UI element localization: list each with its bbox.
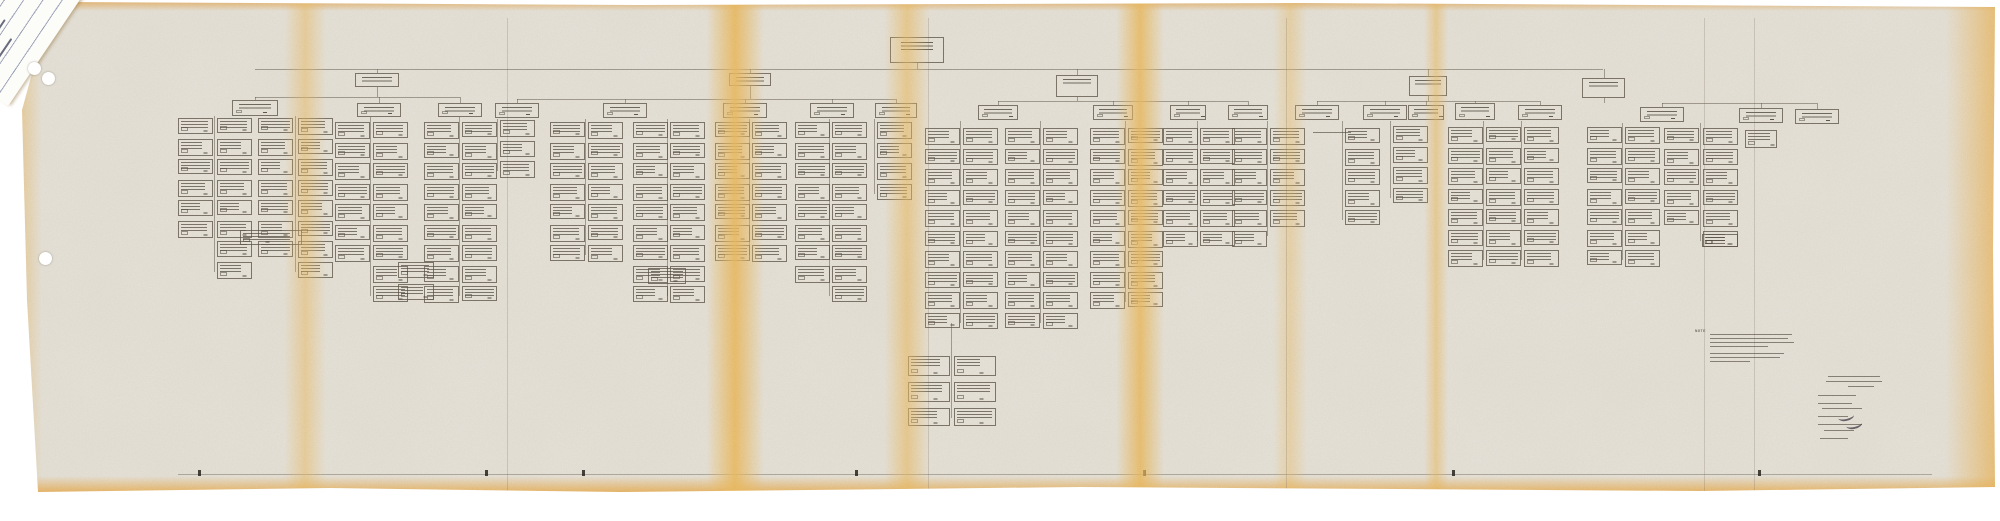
org-box [1625,148,1660,164]
org-box [1448,189,1483,204]
org-box [462,245,497,261]
org-box [1587,189,1622,206]
org-box [908,356,950,376]
org-box [373,122,408,138]
org-box [1625,209,1660,226]
org-box [588,122,623,139]
org-box [1625,230,1660,246]
org-box [1524,230,1559,245]
org-box [1005,272,1040,288]
org-box [424,184,459,200]
org-box [373,143,408,160]
org-box [178,159,213,174]
org-box [1702,234,1738,247]
org-box [1448,250,1483,267]
org-box [1625,127,1660,144]
fold-mark [855,470,858,476]
org-box [550,143,585,160]
org-box [335,245,370,262]
column-connector-line [1521,121,1522,260]
crease-line [1286,18,1287,491]
org-box [1005,292,1040,309]
org-box [1128,190,1163,207]
column-connector-line [951,323,952,418]
org-box [925,149,960,164]
org-box [1587,209,1622,225]
org-box [832,225,867,242]
org-box [1200,149,1235,164]
org-box [1005,313,1040,328]
org-box [1005,251,1040,268]
org-box [462,225,497,242]
org-box [178,180,213,197]
org-box [550,225,585,242]
org-box [963,128,998,145]
org-box [633,204,668,220]
org-header-box [232,100,278,116]
org-box [462,286,497,301]
org-box [588,245,623,262]
org-box [217,139,252,156]
punch-hole [42,72,55,85]
org-header-box [1170,105,1206,120]
org-box [1163,190,1198,205]
org-box [462,184,497,201]
org-box [1200,231,1235,246]
org-box [1232,169,1267,186]
column-connector-line [874,119,875,194]
org-box [335,122,370,139]
org-branch-box [1409,76,1447,96]
org-box [1200,128,1235,145]
org-box [1587,148,1622,165]
org-box [925,169,960,186]
org-box [1448,127,1483,144]
org-box [1486,168,1521,184]
org-box [752,184,787,200]
crease-line [507,18,508,491]
org-box [1448,209,1483,226]
org-box [715,143,750,160]
org-box [963,169,998,186]
org-box [178,200,213,216]
org-box [550,122,585,137]
org-box [925,313,960,328]
column-connector-line [1267,121,1268,236]
org-box [925,128,960,145]
column-connector-line [1197,121,1198,241]
org-box [1587,127,1622,143]
org-box [752,225,787,240]
org-box [832,184,867,201]
org-box [1163,231,1198,247]
org-box [178,118,213,134]
org-box [795,184,830,201]
org-box [500,161,535,178]
org-header-box [978,105,1018,120]
org-box [670,245,705,262]
org-box [832,286,867,302]
column-connector-line [667,119,668,296]
org-box [424,122,459,139]
fold-mark [1758,470,1761,476]
org-box [1345,210,1380,225]
org-box [398,262,434,278]
org-box [588,184,623,200]
org-header-box [1795,109,1839,124]
column-connector-line [1040,121,1041,323]
main-reporting-line [255,69,1603,70]
org-box [1128,210,1163,225]
org-box [1128,128,1163,143]
org-box [424,245,459,262]
illegible-text-line [1710,353,1784,354]
org-box [1232,128,1267,145]
org-box [1524,127,1559,144]
org-box [1043,272,1078,287]
org-box [1090,292,1125,309]
org-box [633,163,668,178]
crease-line [1754,18,1755,491]
org-box [1043,128,1078,145]
org-box [1090,210,1125,227]
org-box [500,120,535,137]
org-box [1090,128,1125,145]
org-box [298,118,333,135]
connector-line [1428,69,1429,76]
org-box [424,204,459,221]
punch-hole [39,252,52,265]
org-box [1270,149,1305,164]
org-box [795,163,830,178]
connector-line [750,86,751,99]
org-box [1270,128,1305,145]
org-header-box [723,103,767,118]
org-box [908,382,950,402]
illegible-text-line [1710,361,1750,362]
column-connector-line [829,119,830,296]
org-box [963,313,998,329]
illegible-text-line [1710,342,1794,343]
org-box [1745,130,1777,148]
org-box [954,408,996,426]
org-box [1486,230,1521,247]
illegible-text-line [1710,338,1788,339]
org-box [1703,169,1738,186]
org-box [1128,149,1163,166]
org-box [963,190,998,205]
org-box [633,122,668,138]
org-box [1625,168,1660,185]
org-box [1163,149,1198,165]
fold-mark [485,470,488,476]
org-header-box [1739,108,1783,123]
org-box [925,190,960,206]
org-box [1448,148,1483,164]
org-box [588,163,623,180]
org-box [633,245,668,260]
org-box [1232,210,1267,227]
org-box [1128,272,1163,289]
org-box [1703,190,1738,205]
children-line [517,99,896,100]
org-box [1043,313,1078,329]
org-box [373,204,408,220]
crease-line [1704,18,1705,491]
aged-paper-sheet: NOTE [0,0,2000,521]
org-box [877,163,912,180]
org-box [715,122,750,137]
org-box [462,163,497,179]
org-box [298,262,333,278]
org-box [398,284,434,300]
org-box [1043,210,1078,227]
org-box [217,180,252,197]
fold-mark [198,470,201,476]
org-box [752,163,787,180]
org-box [954,382,996,402]
org-box [1486,189,1521,206]
org-box [1664,210,1699,225]
org-box [925,272,960,288]
org-box [335,204,370,221]
org-box [1393,126,1428,143]
illegible-text-line [1826,381,1882,382]
org-box [670,143,705,158]
org-box [373,245,408,260]
org-box [832,163,867,178]
org-box [1200,190,1235,206]
org-box [1128,251,1163,267]
column-connector-line [295,116,296,272]
org-box [424,143,459,158]
org-box [298,241,333,258]
org-box [1043,231,1078,247]
org-box [217,200,252,215]
org-box [373,163,408,178]
org-box [298,139,333,154]
org-box [670,286,705,303]
org-box [1005,169,1040,186]
org-box [1163,169,1198,186]
org-box [963,251,998,268]
org-branch-box [1582,78,1625,98]
org-box [335,225,370,240]
org-box [963,231,998,247]
org-box [877,184,912,200]
org-box [462,266,497,283]
column-connector-line [1483,121,1484,260]
org-header-box [1295,105,1339,120]
org-box [1486,250,1521,266]
org-box [1128,292,1163,307]
org-box [1664,149,1699,166]
org-box [1703,128,1738,145]
org-box [795,245,830,260]
org-box [715,225,750,242]
org-box [1270,210,1305,227]
children-line [1317,101,1540,102]
org-box [258,159,293,175]
org-header-box [875,103,917,118]
org-box [670,204,705,221]
org-box [1043,149,1078,165]
org-box [373,184,408,201]
org-box [1090,231,1125,246]
column-connector-line [585,119,586,255]
org-box [462,204,497,219]
fold-mark [1452,470,1455,476]
org-box [1664,128,1699,143]
org-box [298,180,333,196]
org-box [925,231,960,246]
org-box [795,225,830,242]
org-box [795,204,830,220]
org-box [954,356,996,376]
org-box [715,245,750,261]
illegible-text-line [1824,430,1854,431]
crease-line [928,18,929,491]
org-box [550,163,585,179]
org-header-box [1363,105,1407,120]
org-header-box [1455,103,1495,120]
org-box [633,225,668,242]
org-box [795,122,830,138]
column-connector-line [370,117,371,296]
org-box [1005,128,1040,145]
org-box [1587,168,1622,183]
org-box [1128,231,1163,248]
illegible-text-line [1710,346,1768,347]
org-box [258,118,293,133]
org-box [1625,189,1660,204]
children-line [998,101,1248,102]
org-box [1200,210,1235,227]
org-box [1587,250,1622,265]
org-box [217,159,252,175]
children-line [1662,103,1817,104]
org-box [963,292,998,309]
org-box [1664,169,1699,185]
org-box [715,163,750,179]
org-header-box [1640,107,1684,122]
org-box [1703,149,1738,165]
org-box [1200,169,1235,186]
fold-mark [582,470,585,476]
org-box [298,159,333,176]
org-box [1345,128,1380,143]
fold-mark [1143,470,1146,476]
org-box [1486,209,1521,224]
org-box [832,204,867,220]
org-box [462,122,497,137]
org-box [925,292,960,309]
org-box [1270,169,1305,186]
org-branch-box [1056,75,1098,97]
scanned-orgchart-page: { "document": { "kind": "scanned fold-ou… [0,0,2000,521]
org-header-box [495,103,539,118]
org-box [1345,190,1380,207]
org-box [178,221,213,238]
org-box [178,139,213,156]
note-label: NOTE [1695,330,1706,334]
org-box [1448,230,1483,246]
column-connector-line [1700,123,1701,241]
org-box [1163,128,1198,145]
org-box [424,225,459,240]
column-connector-line [960,121,961,323]
org-box [1486,148,1521,165]
org-box [1664,190,1699,207]
org-box [335,184,370,200]
org-box [832,266,867,283]
org-box [588,225,623,240]
org-box [1090,251,1125,268]
org-box [258,180,293,197]
org-box [752,245,787,262]
org-box [424,163,459,180]
org-box [1587,230,1622,247]
org-box [258,139,293,156]
org-box [1524,209,1559,226]
org-box [1090,169,1125,186]
org-header-box [1228,105,1268,120]
children-line [255,97,460,98]
org-chart-drawing [0,0,2000,521]
org-box [832,143,867,160]
illegible-text-line [1822,408,1862,409]
org-box [715,184,750,201]
org-box [1043,251,1078,268]
org-box [963,210,998,227]
handwriting-stroke [0,38,12,67]
org-box [752,204,787,221]
org-box [670,163,705,180]
org-box [925,251,960,268]
org-box [373,225,408,242]
org-box [1090,149,1125,164]
org-box [963,272,998,287]
org-box [633,184,668,201]
org-box [752,143,787,158]
org-box [908,408,950,426]
org-box [217,262,252,279]
punch-hole [28,62,41,75]
org-box [1524,189,1559,205]
illegible-text-line [1848,386,1874,387]
org-box [670,184,705,200]
org-header-box [1408,105,1444,120]
org-box [1005,190,1040,206]
org-box [832,245,867,260]
org-box [550,184,585,201]
org-box [335,143,370,158]
org-box [240,230,302,245]
connector-line [377,87,378,97]
org-box [1345,149,1380,166]
org-box [877,122,912,139]
org-root-box [890,37,944,63]
org-box [877,143,912,158]
org-box [1393,147,1428,163]
org-box [588,143,623,158]
connector-line [1604,69,1605,78]
org-box [1393,167,1428,184]
mid-chart-note [1313,132,1351,133]
org-box [670,225,705,240]
org-box [1524,148,1559,163]
org-box [1005,231,1040,246]
